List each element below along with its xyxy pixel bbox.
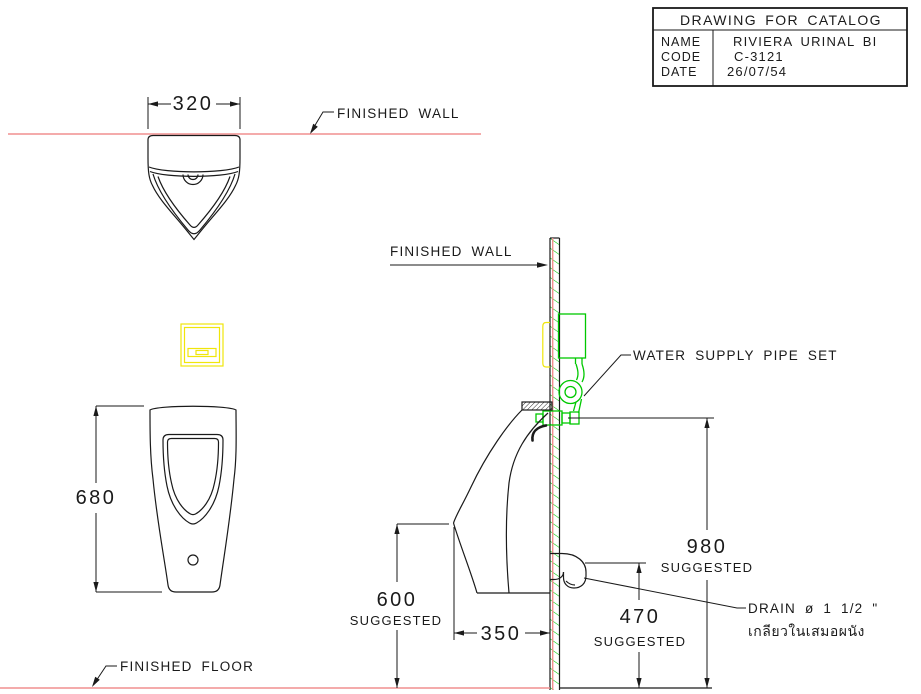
urinal-front-drain-hole (188, 555, 198, 565)
title-block-title: DRAWING FOR CATALOG (680, 12, 882, 28)
title-block-row-label: CODE (661, 50, 701, 64)
drain-height-note: SUGGESTED (594, 634, 686, 649)
wall-section (550, 238, 560, 690)
front-view: 680 (76, 406, 237, 592)
title-block-row-value: 26/07/54 (727, 64, 787, 79)
title-block: DRAWING FOR CATALOG NAME RIVIERA URINAL … (653, 8, 907, 86)
finished-wall-side-label: FINISHED WALL (390, 244, 548, 268)
water-supply-label: WATER SUPPLY PIPE SET (584, 348, 838, 396)
depth-dim-text: 350 (481, 623, 522, 645)
sensor-outer-square (181, 324, 223, 366)
urinal-plan-spreader-inner (188, 175, 198, 180)
sensor-bar (188, 349, 216, 357)
title-block-row-label: NAME (661, 35, 701, 49)
urinal-front-rim-outer (163, 435, 223, 525)
side-view: FINISHED WALL (0, 238, 878, 690)
technical-drawing-canvas: DRAWING FOR CATALOG NAME RIVIERA URINAL … (0, 0, 921, 694)
finished-wall-side-text: FINISHED WALL (390, 244, 513, 259)
dimension-600: 600 SUGGESTED (350, 524, 449, 688)
drain-spec-text: DRAIN ø 1 1/2 " (748, 601, 878, 616)
valve-lever (532, 426, 546, 441)
dimension-350: 350 (454, 527, 550, 645)
sensor-bar-button (196, 351, 208, 355)
dimension-320: 320 (148, 93, 240, 129)
flush-valve-box (559, 314, 586, 358)
sensor-flush-unit (181, 324, 223, 366)
title-block-row-value: C-3121 (734, 49, 784, 64)
supply-pipe-loop-outer (559, 381, 582, 404)
drain-height-dim-text: 470 (620, 606, 661, 628)
finished-floor-label: FINISHED FLOOR (92, 659, 254, 687)
rim-height-note: SUGGESTED (350, 613, 442, 628)
rim-height-dim-text: 600 (377, 589, 418, 611)
dimension-680: 680 (76, 406, 162, 592)
supply-pipe-loop-inner (565, 387, 576, 398)
finished-floor-text: FINISHED FLOOR (120, 659, 254, 674)
plan-view: 320 FINISHED WALL (8, 93, 481, 240)
in-wall-sensor-conduit (543, 323, 550, 368)
urinal-side-profile (454, 410, 551, 593)
title-block-row-label: DATE (661, 65, 697, 79)
dimension-470: 470 SUGGESTED (585, 563, 686, 688)
plan-width-dim-text: 320 (173, 93, 214, 115)
sensor-inner-square (185, 328, 220, 363)
urinal-plan-outline (148, 136, 240, 240)
urinal-plan-rim-back-line (149, 167, 239, 172)
water-supply-text: WATER SUPPLY PIPE SET (633, 348, 838, 363)
supply-height-note: SUGGESTED (661, 560, 753, 575)
drain-spec-thai-text: เกลียวในเสมอผนัง (748, 623, 865, 639)
title-block-row-value: RIVIERA URINAL BI (733, 34, 877, 49)
urinal-rim-section (522, 402, 552, 410)
catalog-drawing-page: DRAWING FOR CATALOG NAME RIVIERA URINAL … (0, 0, 921, 694)
urinal-front-rim-inner (168, 439, 219, 515)
front-height-dim-text: 680 (76, 487, 117, 509)
finished-wall-plan-label: FINISHED WALL (310, 106, 460, 134)
finished-wall-plan-text: FINISHED WALL (337, 106, 460, 121)
supply-height-dim-text: 980 (687, 536, 728, 558)
